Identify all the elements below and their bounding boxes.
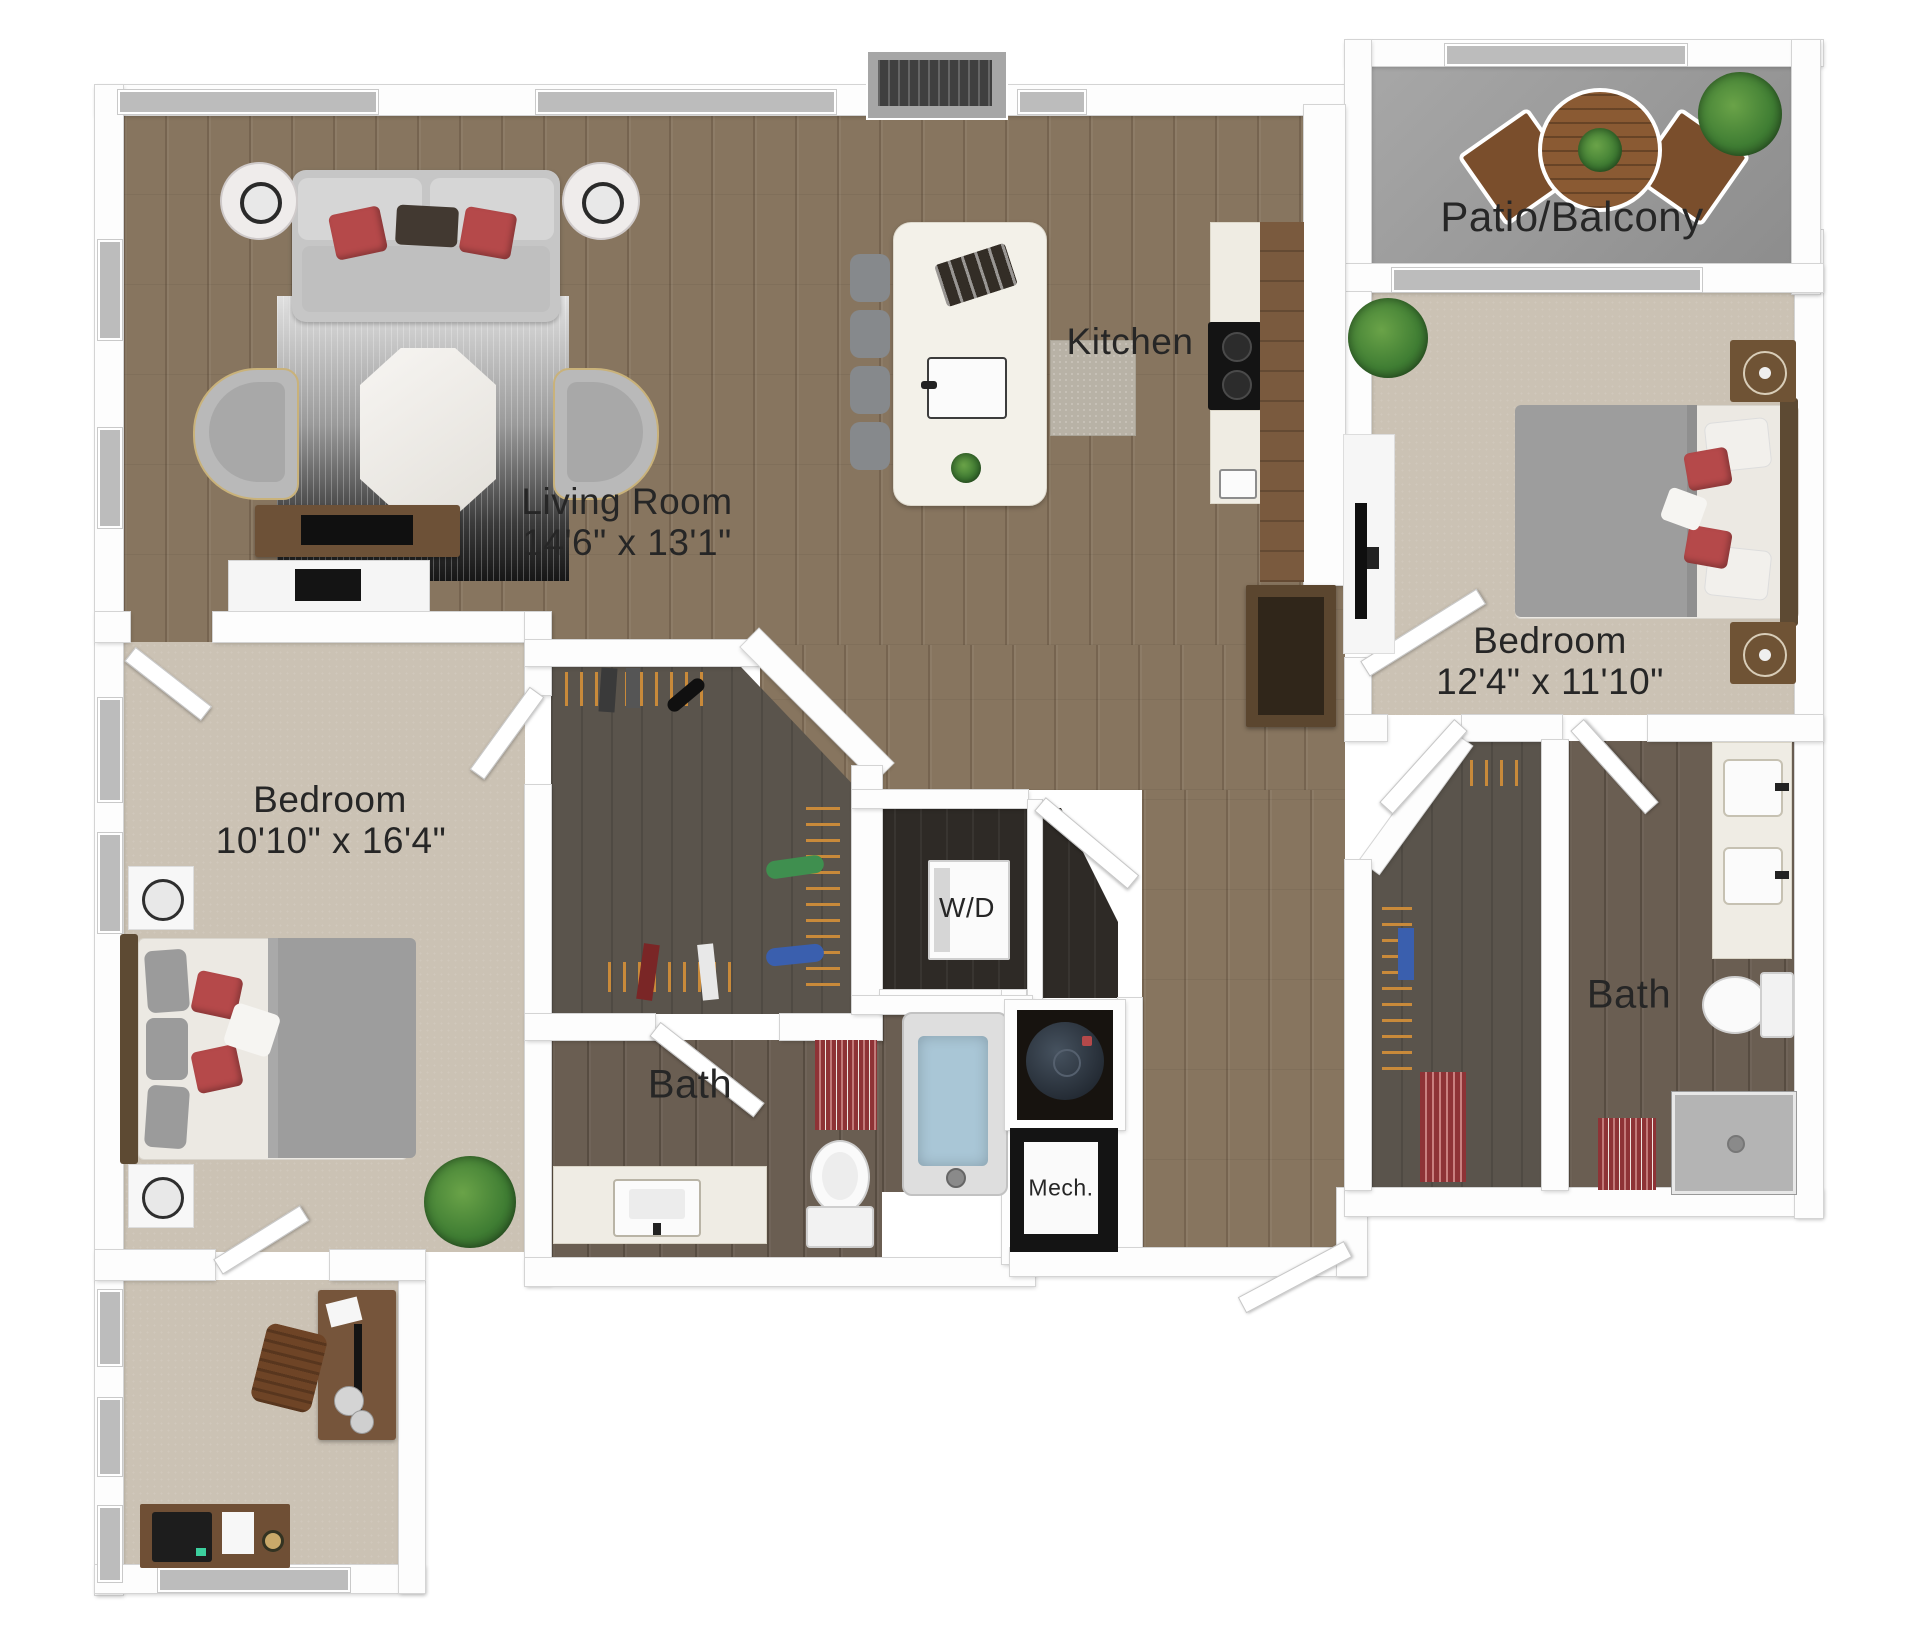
bedroom-left-dims: 10'10" x 16'4" <box>216 820 447 862</box>
office-desk <box>318 1290 396 1440</box>
hanging-garment <box>598 667 617 712</box>
chair-seat <box>567 382 643 482</box>
cabinet-inner <box>1258 597 1324 715</box>
wall-closetL-top <box>525 640 760 666</box>
wall-bath-main-top-a <box>525 1014 655 1040</box>
wall-laundry-top <box>852 790 1028 808</box>
vent-grill <box>878 60 992 106</box>
burner <box>1222 332 1252 362</box>
chair-seat <box>209 382 285 482</box>
window <box>98 428 122 528</box>
headboard <box>120 934 138 1164</box>
toilet-seat <box>822 1152 858 1200</box>
window <box>118 90 378 114</box>
wall-bath-main-top-b <box>780 1014 882 1040</box>
bar-stool <box>850 366 890 414</box>
kitchen-label: Kitchen <box>1067 321 1194 363</box>
sofa <box>292 170 560 322</box>
floor-plan: Living Room 14'6" x 13'1" Kitchen Patio/… <box>0 0 1925 1650</box>
window <box>536 90 836 114</box>
window <box>98 240 122 340</box>
tv-mount <box>1367 547 1379 569</box>
closet-hangers <box>1382 900 1412 1070</box>
vanity <box>553 1166 767 1244</box>
nightstand <box>1730 622 1796 684</box>
lamp-glow <box>1759 367 1771 379</box>
credenza <box>140 1504 290 1568</box>
lamp-glow <box>1759 649 1771 661</box>
window <box>98 698 122 802</box>
paper <box>222 1512 254 1554</box>
shower <box>1672 1092 1796 1194</box>
sink-basin <box>629 1189 685 1219</box>
sink <box>613 1179 701 1237</box>
plant-small <box>951 453 981 483</box>
faucet <box>653 1223 661 1235</box>
bed-duvet <box>268 938 416 1158</box>
faucet <box>1775 783 1789 791</box>
bedroom-right-dims: 12'4" x 11'10" <box>1436 661 1664 703</box>
island-sink <box>927 357 1007 419</box>
patio-railing-window <box>1445 44 1687 66</box>
double-vanity <box>1712 742 1792 959</box>
closet-hangers <box>1470 760 1530 786</box>
printer-light <box>196 1548 206 1556</box>
wall-kitchen-right <box>1304 105 1345 585</box>
wall-closetR-bath-divider <box>1542 740 1568 1190</box>
wall-office-right <box>399 1280 425 1593</box>
nightstand <box>128 1164 194 1228</box>
pantry-cabinet <box>1246 585 1336 727</box>
wall-bedroomR-bottom-b <box>1462 715 1562 741</box>
monitor <box>295 569 361 601</box>
media-console <box>255 505 460 557</box>
utility-vent-block <box>866 50 1008 120</box>
gray-pillow <box>146 1018 188 1080</box>
sliding-door <box>1392 268 1702 292</box>
speaker <box>142 879 184 921</box>
window <box>158 1568 350 1592</box>
table-lamp <box>582 182 624 224</box>
bar-stool <box>850 310 890 358</box>
tv <box>1355 503 1367 619</box>
mech-label: Mech. <box>1028 1175 1093 1202</box>
bath-second-label: Bath <box>1587 973 1671 1018</box>
shower-drain <box>1727 1135 1745 1153</box>
wall-closetR-left <box>1345 860 1371 1190</box>
bedroom-plant <box>1348 298 1428 378</box>
nightstand-lamp <box>1743 633 1787 677</box>
patio-label: Patio/Balcony <box>1440 193 1703 241</box>
gray-pillow <box>144 1085 190 1150</box>
window <box>98 1506 122 1582</box>
wall-bottom-bath <box>525 1258 1035 1286</box>
wall-bedroomR-bottom-a <box>1345 715 1387 741</box>
living-room-label: Living Room <box>521 481 732 523</box>
globe <box>350 1410 374 1434</box>
wall-office-top-b <box>330 1250 425 1280</box>
faucet <box>1775 871 1789 879</box>
hallway-floor-lower <box>1142 790 1345 1250</box>
nightstand-lamp <box>1743 351 1787 395</box>
window <box>98 1290 122 1366</box>
bedroom-plant <box>424 1156 516 1248</box>
heater-hub <box>1053 1049 1081 1077</box>
window <box>98 833 122 933</box>
plant-small <box>1578 128 1622 172</box>
red-pillow <box>1683 446 1733 491</box>
coffee-table <box>360 348 496 516</box>
tv <box>301 515 413 545</box>
paper <box>326 1296 363 1327</box>
bathtub <box>902 1012 1008 1196</box>
red-pillow <box>1683 524 1733 569</box>
kitchen-island <box>893 222 1047 506</box>
headboard <box>1780 398 1798 626</box>
toilet-tank <box>1760 972 1794 1038</box>
speaker <box>142 1177 184 1219</box>
counter-sink <box>1219 469 1257 499</box>
cooktop <box>1208 322 1262 410</box>
tub-faucet <box>946 1168 966 1188</box>
kitchen-counter <box>1210 410 1262 504</box>
dark-pillow <box>395 204 459 247</box>
side-table <box>220 162 298 240</box>
printer <box>152 1512 212 1562</box>
wall-living-bedroom-a <box>95 612 130 642</box>
toilet <box>810 1140 870 1214</box>
gray-pillow <box>144 949 190 1014</box>
toilet-tank <box>806 1206 874 1248</box>
bar-stool <box>850 422 890 470</box>
water-heater-closet-floor <box>1017 1010 1113 1120</box>
sink <box>1723 847 1783 905</box>
toilet <box>1702 976 1768 1034</box>
window <box>98 1398 122 1476</box>
heater-valve <box>1082 1036 1092 1046</box>
wall-living-bedroom-b <box>213 612 551 642</box>
water-heater <box>1026 1022 1104 1100</box>
hanging-garments-red <box>1420 1072 1466 1182</box>
hanging-garment <box>626 668 640 708</box>
desk-console <box>228 560 430 612</box>
living-room-dims: 14'6" x 13'1" <box>522 522 731 564</box>
patio-plant <box>1698 72 1782 156</box>
nightstand <box>128 866 194 930</box>
bath-main-label: Bath <box>648 1063 732 1108</box>
burner <box>1222 370 1252 400</box>
desk-clock <box>262 1530 284 1552</box>
counter-wood <box>1260 222 1304 582</box>
sink <box>1723 759 1783 817</box>
wall-bedroomR-bottom-c <box>1648 715 1823 741</box>
kitchen-counter <box>1210 222 1262 324</box>
wall-office-top-a <box>95 1250 215 1280</box>
bedroom-right-label: Bedroom <box>1473 620 1627 662</box>
wall-laundry-divider <box>1028 800 1042 1000</box>
side-table <box>562 162 640 240</box>
bar-stool <box>850 254 890 302</box>
bath-rug <box>1598 1118 1656 1190</box>
nightstand <box>1730 340 1796 402</box>
wine-rack <box>934 243 1018 308</box>
table-lamp <box>240 182 282 224</box>
red-pillow <box>458 206 517 260</box>
tub-water <box>918 1036 988 1166</box>
faucet <box>921 381 937 389</box>
bath-rug <box>815 1040 877 1130</box>
wall-patio-right <box>1792 40 1820 294</box>
hanging-garment-blue <box>1398 928 1414 980</box>
wall-patio-left <box>1345 40 1371 294</box>
tv-console <box>1343 434 1395 654</box>
bedroom-left-label: Bedroom <box>253 779 407 821</box>
window <box>1018 90 1086 114</box>
laundry-label: W/D <box>939 892 995 924</box>
